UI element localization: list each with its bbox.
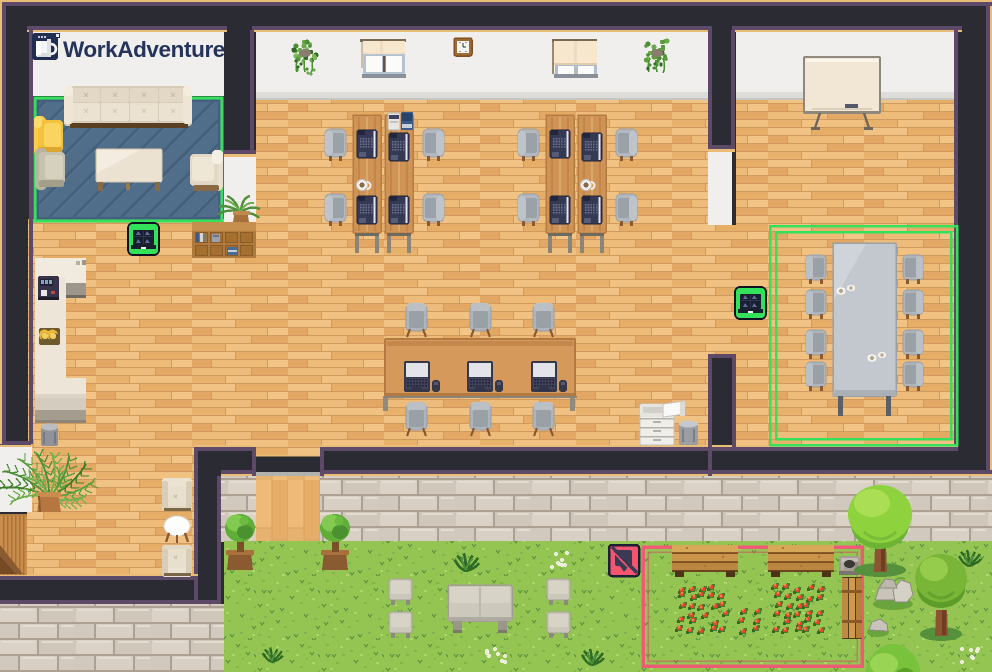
svg-text:WorkAdventure: WorkAdventure [63,37,225,62]
